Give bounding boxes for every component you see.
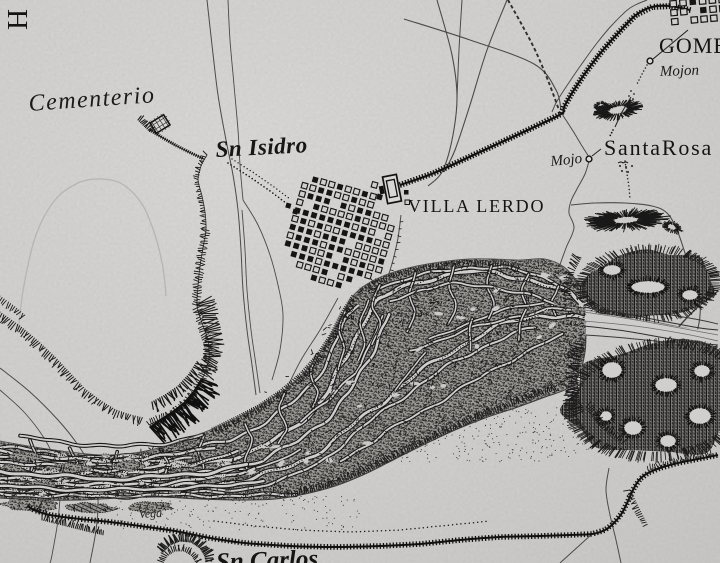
svg-text:Sn Carlos: Sn Carlos bbox=[216, 545, 319, 563]
svg-text:VILLA LERDO: VILLA LERDO bbox=[408, 196, 545, 216]
svg-text:Sn Isidro: Sn Isidro bbox=[215, 132, 308, 162]
svg-text:GOME: GOME bbox=[659, 33, 720, 58]
svg-text:H: H bbox=[1, 9, 33, 30]
svg-text:Vega: Vega bbox=[138, 506, 162, 521]
svg-text:SantaRosa: SantaRosa bbox=[604, 135, 713, 160]
svg-text:Mojon: Mojon bbox=[659, 63, 700, 80]
